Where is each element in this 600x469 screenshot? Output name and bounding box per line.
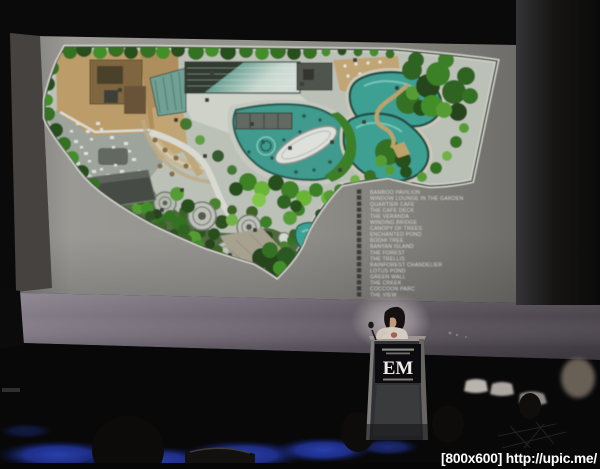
- svg-text:WINDOW LOUNGE IN THE GARDEN: WINDOW LOUNGE IN THE GARDEN: [370, 196, 464, 202]
- svg-text:THE CREEK: THE CREEK: [370, 281, 402, 287]
- svg-text:THE CAFE DECK: THE CAFE DECK: [370, 208, 414, 214]
- svg-text:WINDING BRIDGE: WINDING BRIDGE: [370, 220, 418, 226]
- svg-text:EM: EM: [383, 358, 414, 379]
- svg-text:BANYAN ISLAND: BANYAN ISLAND: [370, 244, 414, 250]
- svg-text:LOTUS POND: LOTUS POND: [370, 268, 406, 274]
- svg-text:THE TRELLIS: THE TRELLIS: [370, 256, 405, 262]
- svg-text:[800x600] http://upic.me/: [800x600] http://upic.me/: [441, 451, 597, 466]
- svg-text:ENCHANTED POND: ENCHANTED POND: [370, 232, 422, 238]
